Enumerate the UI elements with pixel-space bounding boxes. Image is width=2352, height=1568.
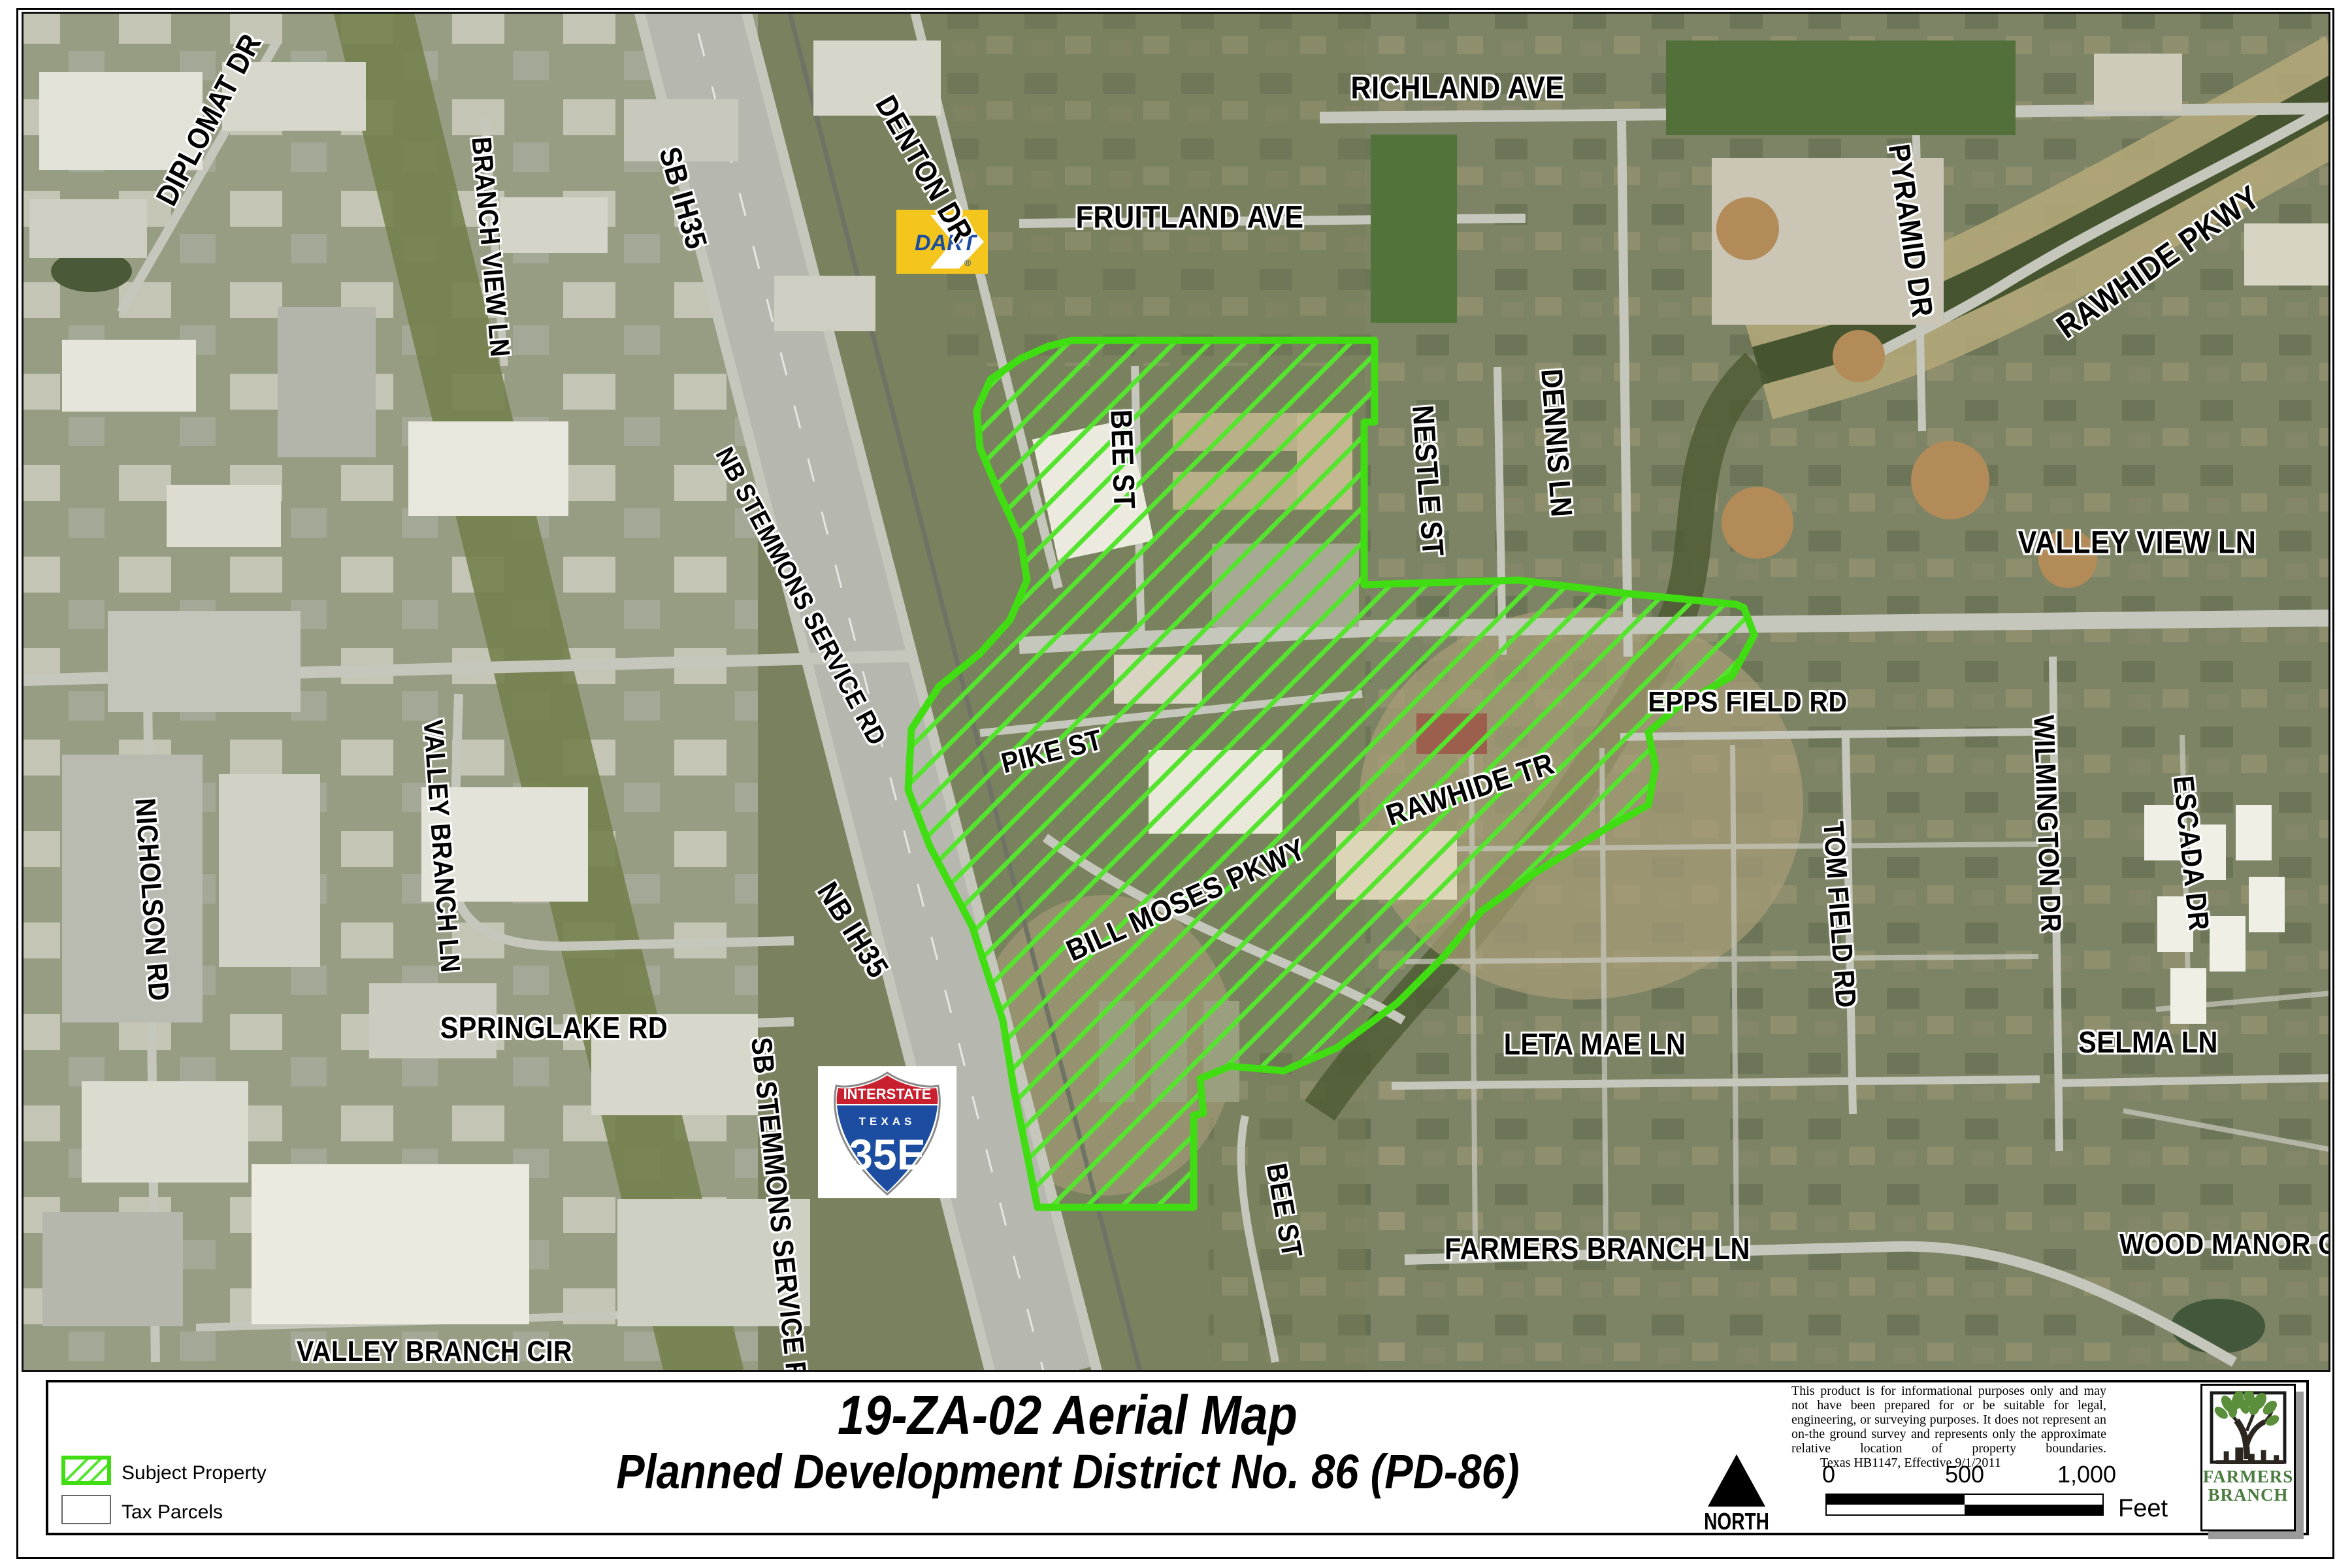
scale-tick-500: 500 (1945, 1461, 1984, 1488)
scale-tick-1000: 1,000 (2057, 1461, 2116, 1488)
street-label-wilmington-dr: WILMINGTON DR (2027, 715, 2067, 933)
street-label-nicholson-rd: NICHOLSON RD (128, 797, 175, 1002)
street-label-farmers-branch-ln: FARMERS BRANCH LN (1445, 1231, 1750, 1266)
logo-text-branch: BRANCH (2202, 1486, 2294, 1504)
street-label-rawhide-pkwy: RAWHIDE PKWY (2050, 178, 2267, 346)
street-label-branch-view-ln: BRANCH VIEW LN (465, 136, 515, 359)
street-label-wood-manor-cir: WOOD MANOR CIR (2119, 1228, 2330, 1261)
disclaimer-body: This product is for informational purpos… (1791, 1384, 2106, 1456)
map-title-text: 19-ZA-02 Aerial Map (838, 1388, 1298, 1443)
legend-swatch-subject-property (61, 1456, 111, 1485)
street-label-dennis-ln: DENNIS LN (1534, 368, 1580, 518)
street-label-fruitland-ave: FRUITLAND AVE (1075, 200, 1303, 236)
street-label-pike-st: PIKE ST (998, 724, 1106, 781)
legend-label-subject-property: Subject Property (122, 1462, 267, 1484)
aerial-map-canvas: DART ® INTERSTATE TEXAS 35E DIPLOMAT DRB… (22, 12, 2330, 1372)
disclaimer-text: This product is for informational purpos… (1791, 1384, 2106, 1470)
street-label-nestle-st: NESTLE ST (1405, 404, 1451, 558)
street-label-tom-field-rd: TOM FIELD RD (1816, 820, 1862, 1009)
street-label-nb-ih35: NB IH35 (810, 875, 896, 984)
street-label-selma-ln: SELMA LN (2078, 1024, 2218, 1060)
street-label-springlake-rd: SPRINGLAKE RD (440, 1010, 668, 1045)
street-label-valley-view-ln: VALLEY VIEW LN (2018, 525, 2257, 561)
legend-swatch-tax-parcels (61, 1495, 111, 1524)
map-sheet: DART ® INTERSTATE TEXAS 35E DIPLOMAT DRB… (0, 0, 2352, 1568)
logo-text-farmers: FARMERS (2202, 1467, 2294, 1486)
street-label-valley-branch-cir: VALLEY BRANCH CIR (297, 1335, 572, 1368)
street-label-diplomat-dr: DIPLOMAT DR (148, 28, 269, 212)
street-label-epps-field-rd: EPPS FIELD RD (1648, 686, 1847, 719)
tree-city-icon (2210, 1391, 2287, 1464)
street-label-bee-st: BEE ST (1103, 409, 1142, 510)
street-label-leta-mae-ln: LETA MAE LN (1504, 1026, 1686, 1062)
scale-tick-0: 0 (1822, 1461, 1835, 1488)
street-label-rawhide-tr: RAWHIDE TR (1382, 745, 1558, 833)
map-title-block: 19-ZA-02 Aerial Map Planned Development … (329, 1382, 1806, 1496)
map-title: 19-ZA-02 Aerial Map (329, 1388, 1806, 1443)
street-label-denton-dr: DENTON DR (868, 90, 980, 248)
scale-bar (1825, 1494, 2104, 1516)
street-label-nb-stemmons-service-rd: NB STEMMONS SERVICE RD (710, 443, 892, 751)
street-label-pyramid-dr: PYRAMID DR (1882, 142, 1941, 319)
street-label-bee-st: BEE ST (1260, 1161, 1309, 1260)
map-subtitle-text: Planned Development District No. 86 (PD-… (616, 1448, 1519, 1496)
subject-property-hatch-swatch (65, 1460, 107, 1481)
street-label-escada-dr: ESCADA DR (2166, 774, 2215, 932)
street-label-richland-ave: RICHLAND AVE (1351, 71, 1565, 106)
map-subtitle: Planned Development District No. 86 (PD-… (329, 1448, 1806, 1496)
title-block-panel: Subject Property Tax Parcels 19-ZA-02 Ae… (46, 1380, 2309, 1535)
scale-unit-label: Feet (2118, 1495, 2168, 1523)
north-arrow-icon (1708, 1454, 1765, 1507)
north-label: NORTH (1704, 1508, 1769, 1535)
street-labels-layer: DIPLOMAT DRBRANCH VIEW LNSB IH35DENTON D… (24, 14, 2328, 1370)
street-label-valley-branch-ln: VALLEY BRANCH LN (417, 719, 466, 973)
farmers-branch-logo: FARMERS BRANCH (2200, 1384, 2296, 1531)
street-label-bill-moses-pkwy: BILL MOSES PKWY (1061, 831, 1311, 968)
legend-label-tax-parcels: Tax Parcels (122, 1501, 223, 1524)
street-label-sb-ih35: SB IH35 (652, 143, 715, 253)
street-label-sb-stemmons-service-rd: SB STEMMONS SERVICE RD (744, 1036, 815, 1372)
